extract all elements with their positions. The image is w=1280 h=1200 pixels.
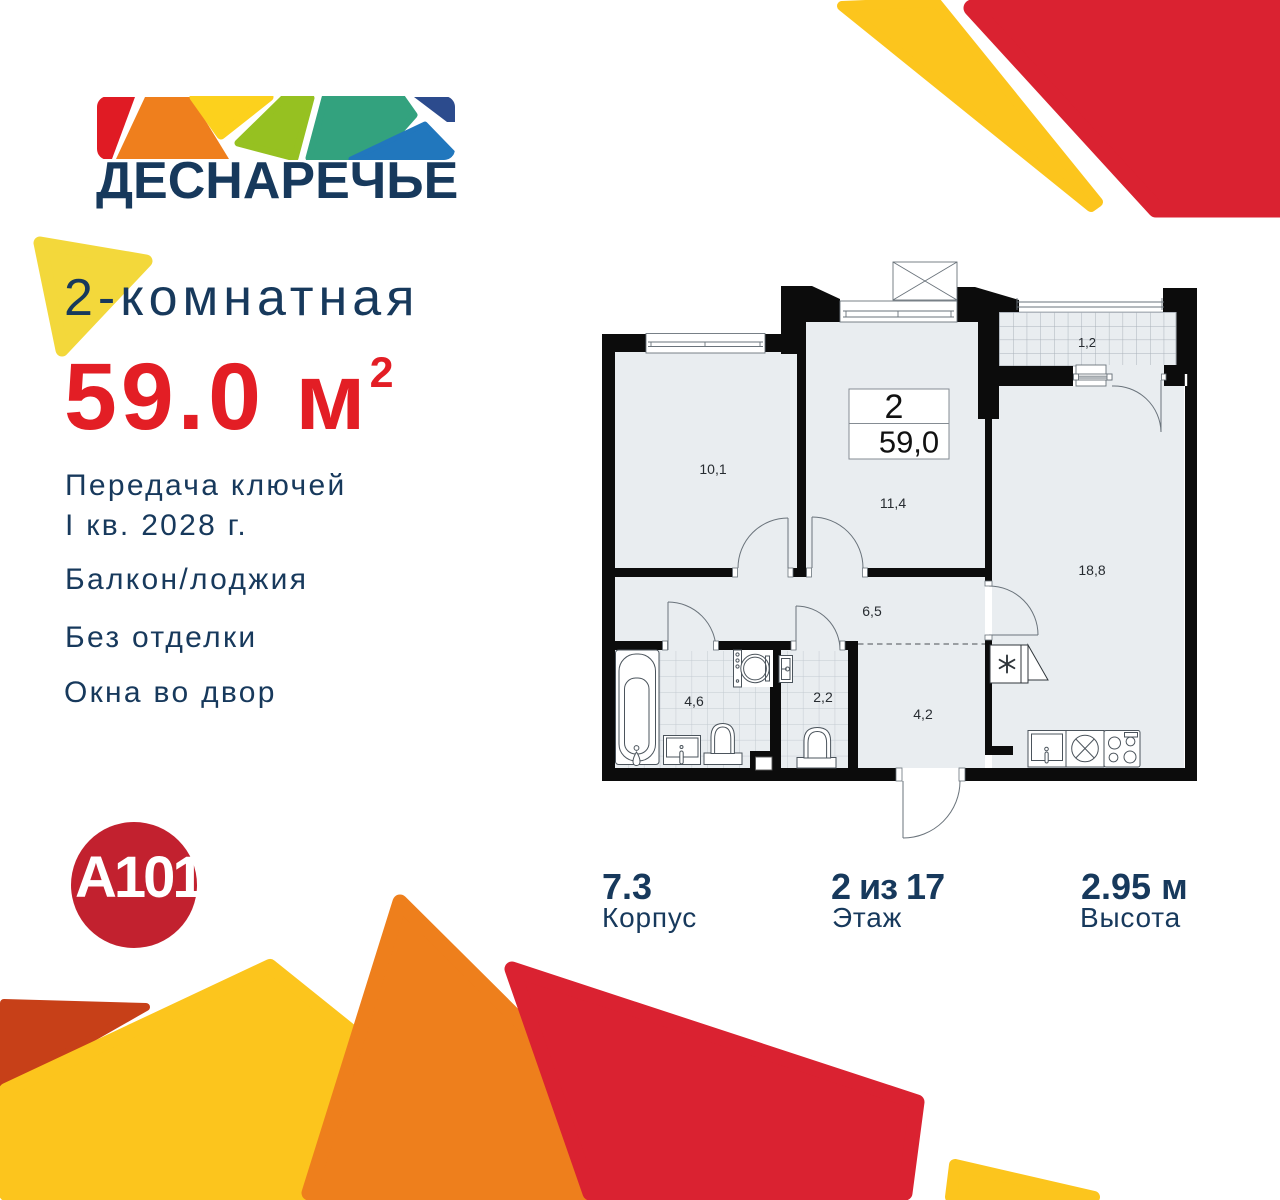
svg-text:4,2: 4,2 — [913, 706, 933, 722]
svg-text:11,4: 11,4 — [880, 495, 906, 511]
svg-text:2,2: 2,2 — [813, 689, 833, 705]
svg-text:18,8: 18,8 — [1078, 562, 1105, 578]
svg-text:6,5: 6,5 — [862, 603, 882, 619]
svg-text:2: 2 — [885, 388, 904, 426]
svg-text:4,6: 4,6 — [684, 693, 704, 709]
svg-text:59,0: 59,0 — [879, 425, 939, 460]
svg-text:10,1: 10,1 — [699, 461, 726, 477]
svg-text:1,2: 1,2 — [1078, 335, 1096, 350]
